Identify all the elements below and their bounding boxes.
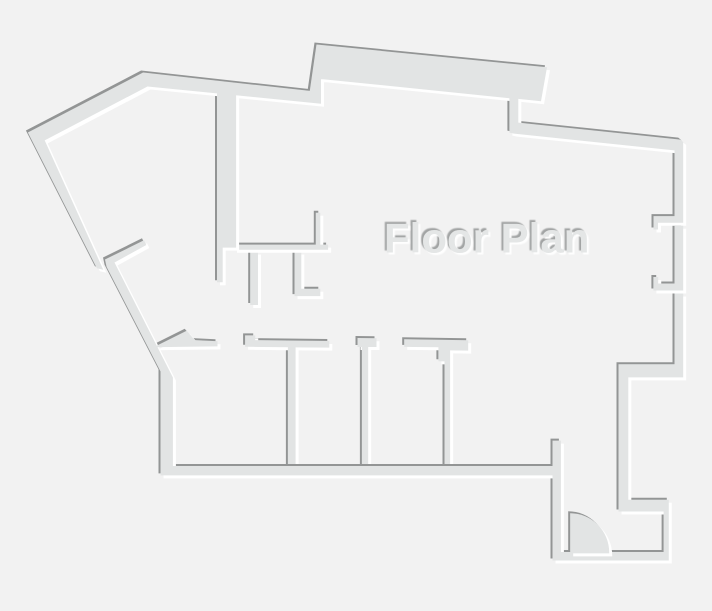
svg-text:Floor Plan: Floor Plan xyxy=(384,215,589,262)
